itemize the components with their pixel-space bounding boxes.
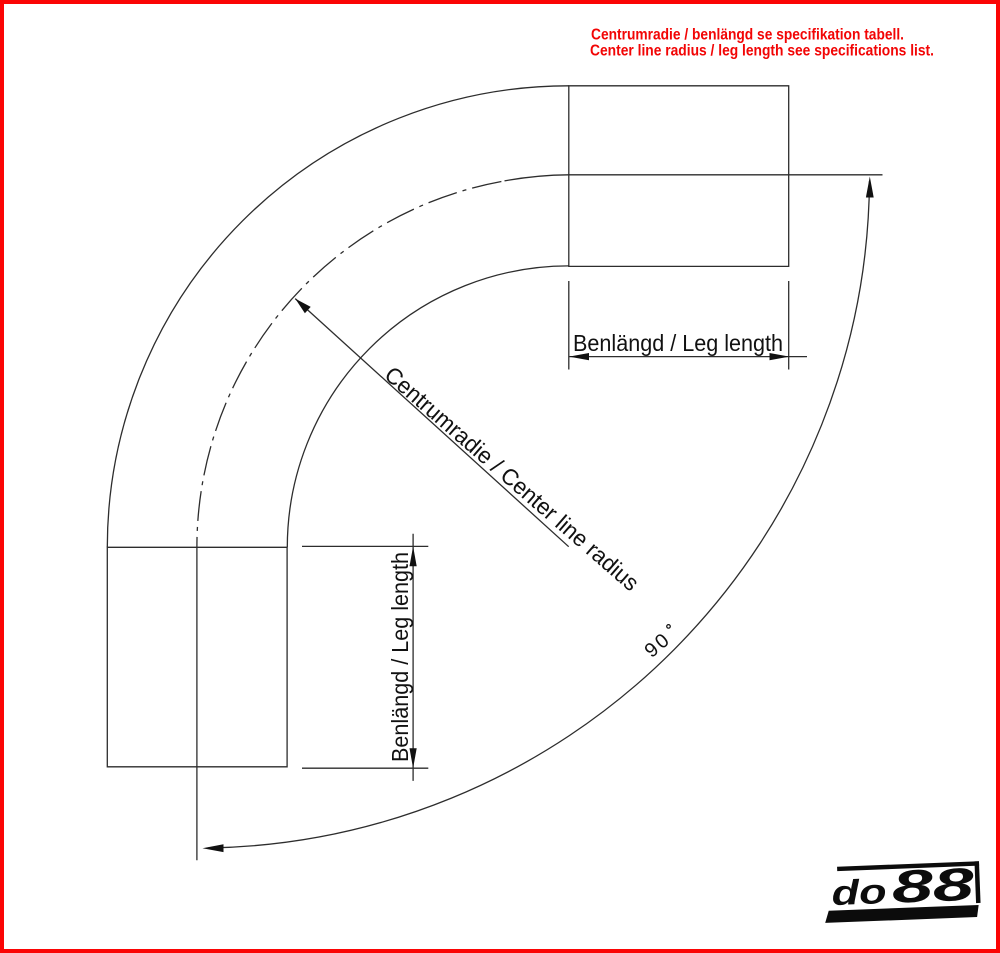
svg-text:Benlängd / Leg length: Benlängd / Leg length <box>387 552 413 762</box>
svg-text:Benlängd / Leg length: Benlängd / Leg length <box>573 330 783 356</box>
svg-text:Centrumradie / benlängd se spe: Centrumradie / benlängd se specifikation… <box>591 27 904 44</box>
svg-text:88: 88 <box>891 858 976 913</box>
svg-text:Center line radius / leg lengt: Center line radius / leg length see spec… <box>590 43 934 60</box>
svg-text:do: do <box>831 872 887 913</box>
